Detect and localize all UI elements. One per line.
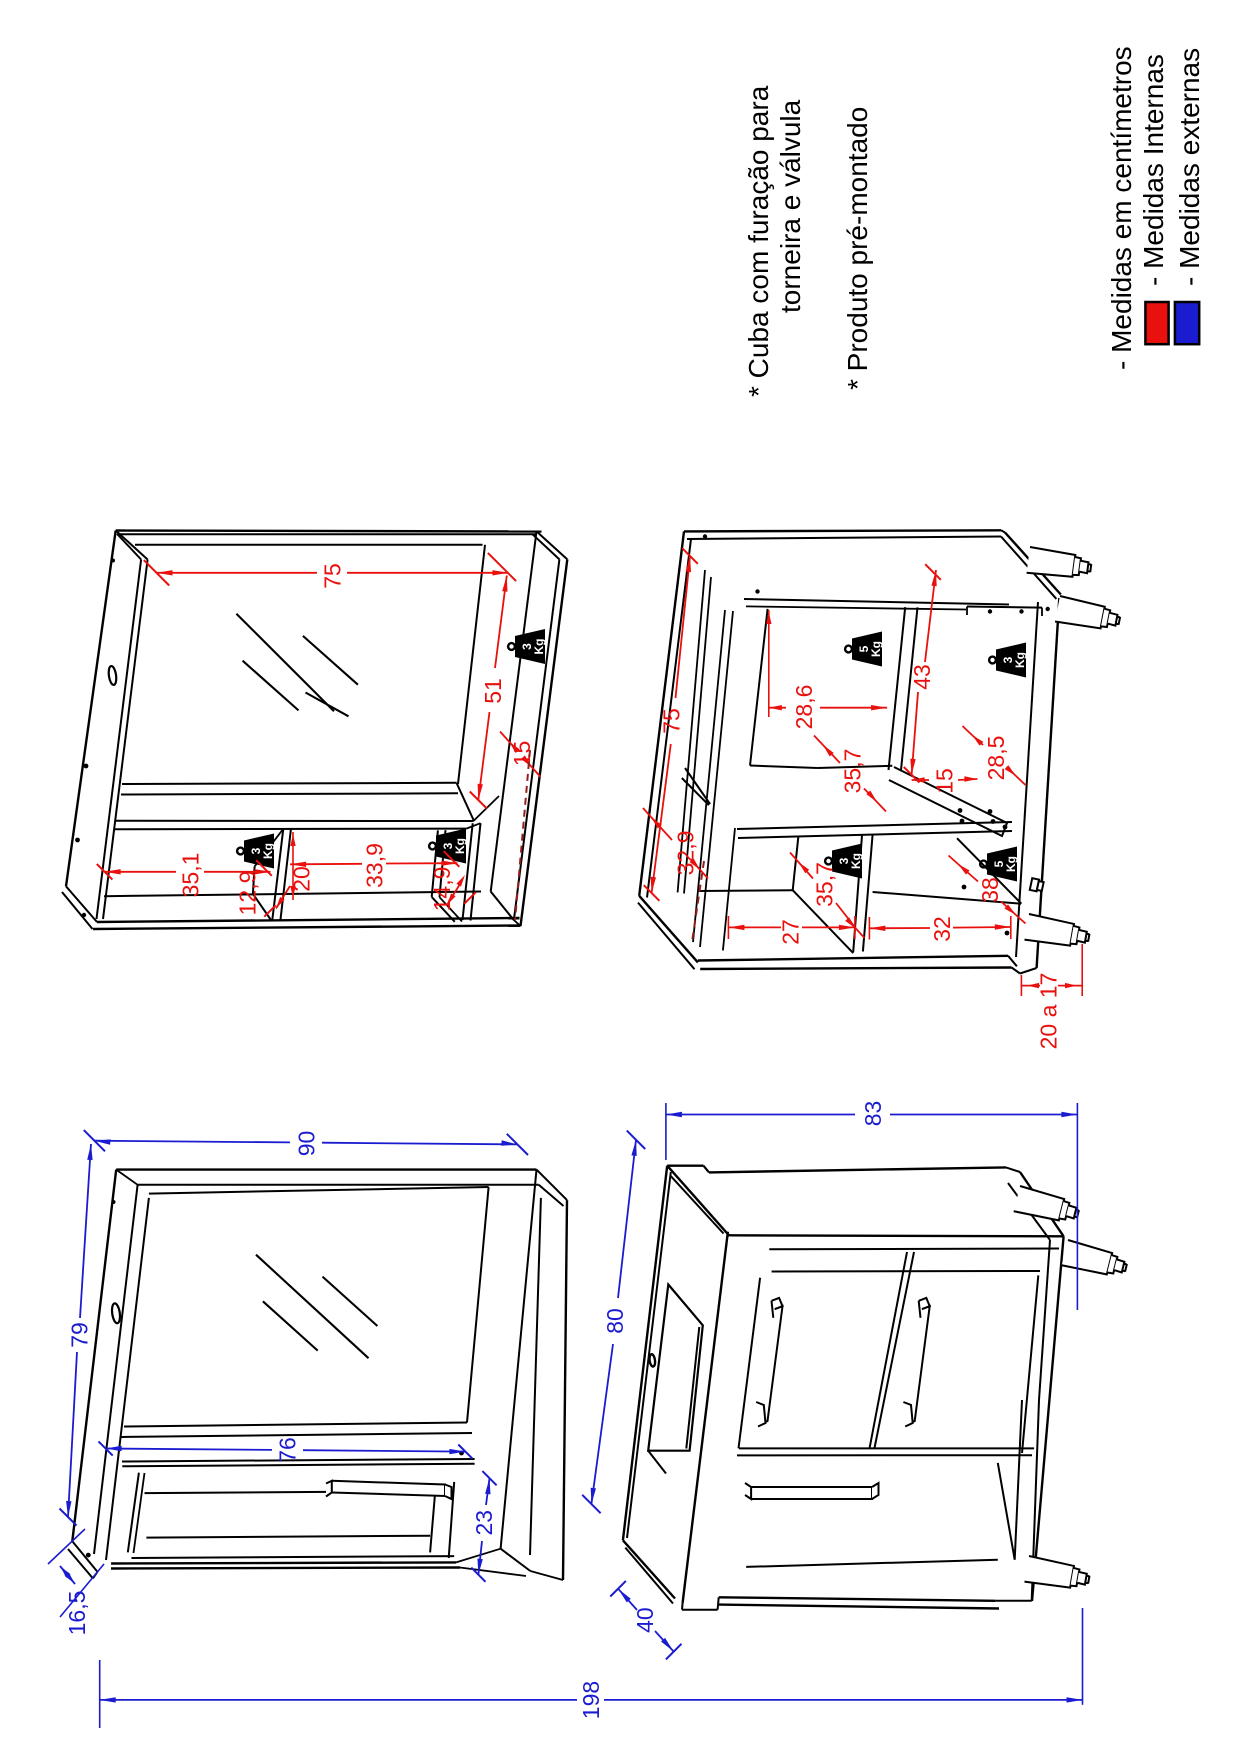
svg-text:38: 38 [977,877,1003,903]
svg-text:15: 15 [931,768,957,794]
svg-text:35,7: 35,7 [839,749,865,794]
svg-text:Kg: Kg [849,853,863,869]
svg-text:- Medidas externas: - Medidas externas [1174,48,1205,286]
svg-text:12,9: 12,9 [234,871,260,916]
svg-text:* Produto pré-montado: * Produto pré-montado [842,107,873,390]
svg-text:35,7: 35,7 [812,862,838,907]
svg-text:* Cuba com furação para: * Cuba com furação para [743,85,774,397]
svg-text:Kg: Kg [453,838,467,854]
svg-text:14,9: 14,9 [429,867,455,912]
svg-text:32,9: 32,9 [672,831,698,876]
svg-text:83: 83 [860,1101,886,1127]
svg-text:torneira e válvula: torneira e válvula [775,99,806,313]
svg-text:16,5: 16,5 [64,1591,90,1636]
svg-text:43: 43 [909,664,935,690]
svg-text:90: 90 [293,1131,319,1157]
svg-text:79: 79 [66,1322,92,1348]
svg-text:Kg: Kg [1013,652,1027,668]
svg-text:- Medidas em centímetros: - Medidas em centímetros [1106,46,1137,370]
svg-text:Kg: Kg [532,639,546,655]
svg-text:51: 51 [480,678,506,704]
svg-text:Kg: Kg [869,641,883,657]
svg-text:23: 23 [471,1510,497,1536]
svg-text:28,5: 28,5 [983,736,1009,781]
svg-text:76: 76 [275,1437,301,1463]
svg-text:20: 20 [288,866,314,892]
svg-text:35,1: 35,1 [177,853,203,898]
svg-text:75: 75 [659,708,685,734]
svg-text:27: 27 [777,919,803,945]
svg-text:20 a 17: 20 a 17 [1035,973,1061,1050]
svg-text:28,6: 28,6 [791,685,817,730]
svg-text:80: 80 [602,1308,628,1334]
svg-text:198: 198 [578,1681,604,1719]
svg-text:32: 32 [929,916,955,942]
svg-text:Kg: Kg [261,843,275,859]
svg-text:33,9: 33,9 [361,843,387,888]
svg-text:75: 75 [319,563,345,589]
svg-text:Kg: Kg [1004,856,1018,872]
svg-text:- Medidas Internas: - Medidas Internas [1138,54,1169,286]
svg-text:15: 15 [509,741,535,767]
svg-text:40: 40 [632,1607,658,1633]
